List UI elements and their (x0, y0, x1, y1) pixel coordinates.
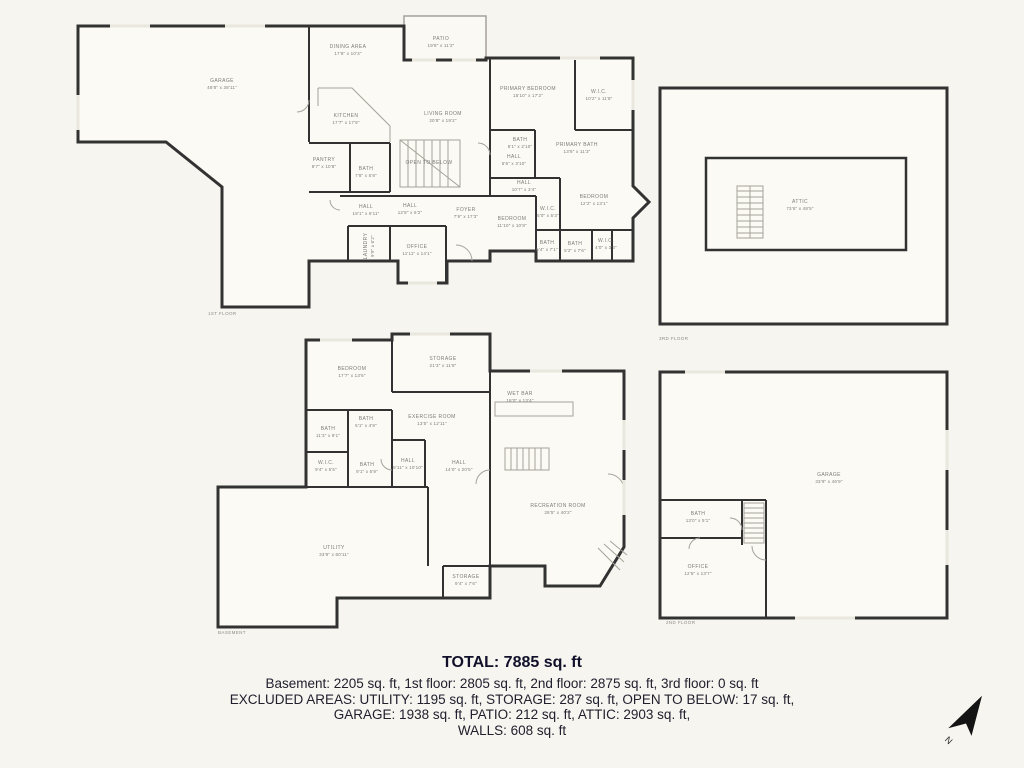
summary-total: TOTAL: 7885 sq. ft (0, 654, 1024, 672)
room-dimensions: 15'10" x 17'2" (500, 93, 556, 98)
summary-walls-area: WALLS: 608 sq. ft (0, 723, 1024, 739)
room-name: W.I.C. (595, 238, 617, 244)
room-label-office: OFFICE11'11" x 14'1" (402, 244, 431, 256)
floor-caption-third-floor: 3RD FLOOR (659, 336, 688, 341)
room-name: HALL (353, 204, 380, 210)
room-label-bath: BATH5'1" x 4'9" (355, 416, 377, 428)
room-label-office: OFFICE12'5" x 13'7" (684, 564, 711, 576)
room-label-bath: BATH11'3" x 9'1" (316, 426, 340, 438)
summary-excluded-areas-2: GARAGE: 1938 sq. ft, PATIO: 212 sq. ft, … (0, 707, 1024, 723)
room-dimensions: 8'11" x 10'10" (393, 465, 423, 470)
room-dimensions: 17'7" x 13'6" (338, 373, 367, 378)
room-label-bath: BATH5'4" x 7'1" (536, 240, 558, 252)
room-label-hall: HALL14'0" x 20'5" (445, 460, 472, 472)
room-dimensions: 18'1" x 6'11" (353, 211, 380, 216)
room-name: PATIO (428, 36, 455, 42)
room-name: HALL (398, 203, 423, 209)
room-name: BATH (536, 240, 558, 246)
room-dimensions: 33'9" x 46'9" (815, 479, 842, 484)
room-label-bedroom: BEDROOM11'10" x 10'8" (497, 216, 527, 228)
room-label-foyer: FOYER7'9" x 17'3" (454, 207, 479, 219)
room-label-bath: BATH5'2" x 7'6" (564, 241, 586, 253)
room-label-storage: STORAGE21'3" x 11'8" (429, 356, 456, 368)
room-name: WET BAR (506, 391, 533, 397)
room-name: BATH (508, 137, 533, 143)
room-name: PRIMARY BEDROOM (500, 86, 556, 92)
room-name: GARAGE (207, 78, 237, 84)
room-dimensions: 13'5" x 12'11" (408, 421, 455, 426)
room-dimensions: 73'6" x 48'5" (786, 206, 813, 211)
room-label-exercise-room: EXERCISE ROOM13'5" x 12'11" (408, 414, 455, 426)
room-label-hall: HALL8'11" x 10'10" (393, 458, 423, 470)
room-name: W.I.C. (315, 460, 337, 466)
room-name: BATH (686, 511, 711, 517)
room-label-hall: HALL12'8" x 6'2" (398, 203, 423, 215)
room-dimensions: 7'8" x 5'8" (355, 173, 377, 178)
room-dimensions: 12'5" x 13'7" (684, 571, 711, 576)
room-label-hall: HALL5'6" x 3'10" (502, 154, 527, 166)
room-label-bath: BATH7'8" x 5'8" (355, 166, 377, 178)
room-labels-layer: GARAGE48'8" x 38'11"DINING AREA17'8" x 1… (0, 0, 1024, 768)
room-name: STORAGE (452, 574, 479, 580)
room-dimensions: 5'6" x 3'10" (502, 161, 527, 166)
room-name: DINING AREA (330, 44, 367, 50)
room-name: OFFICE (402, 244, 431, 250)
room-dimensions: 12'8" x 6'2" (398, 210, 423, 215)
room-dimensions: 18'0" x 13'4" (506, 398, 533, 403)
room-dimensions: 5'4" x 7'1" (536, 247, 558, 252)
floor-caption-second-floor: 2ND FLOOR (666, 620, 695, 625)
room-name: FOYER (454, 207, 479, 213)
room-dimensions: 28'5" x 40'2" (530, 510, 585, 515)
room-label-bedroom: BEDROOM17'7" x 13'6" (338, 366, 367, 378)
area-summary: TOTAL: 7885 sq. ft Basement: 2205 sq. ft… (0, 654, 1024, 738)
room-dimensions: 9'4" x 7'6" (452, 581, 479, 586)
room-dimensions: 8'7" x 10'8" (312, 164, 337, 169)
room-dimensions: 17'8" x 10'3" (330, 51, 367, 56)
room-dimensions: 19'8" x 11'2" (428, 43, 455, 48)
room-label-bath: BATH9'1" x 5'9" (356, 462, 378, 474)
room-label-patio: PATIO19'8" x 11'2" (428, 36, 455, 48)
room-label-primary-bedroom: PRIMARY BEDROOM15'10" x 17'2" (500, 86, 556, 98)
room-name: OFFICE (684, 564, 711, 570)
room-name: BATH (316, 426, 340, 432)
room-dimensions: 48'8" x 38'11" (207, 85, 237, 90)
room-label-primary-bath: PRIMARY BATH13'8" x 11'3" (556, 142, 598, 154)
room-dimensions: 14'0" x 20'5" (445, 467, 472, 472)
room-name: OPEN TO BELOW (406, 160, 453, 166)
room-label-garage: GARAGE48'8" x 38'11" (207, 78, 237, 90)
room-dimensions: 21'3" x 11'8" (429, 363, 456, 368)
room-label-dining-area: DINING AREA17'8" x 10'3" (330, 44, 367, 56)
room-dimensions: 4'0" x 3'3" (595, 245, 617, 250)
room-label-utility: UTILITY33'9" x 60'11" (319, 545, 349, 557)
room-label-open-to-below: OPEN TO BELOW (406, 160, 453, 166)
room-dimensions: 5'0" x 5'3" (537, 213, 559, 218)
room-dimensions: 6'1" x 2'10" (508, 144, 533, 149)
room-name: EXERCISE ROOM (408, 414, 455, 420)
room-name: PANTRY (312, 157, 337, 163)
room-dimensions: 5'2" x 7'6" (564, 248, 586, 253)
room-label-recreation-room: RECREATION ROOM28'5" x 40'2" (530, 503, 585, 515)
room-label-laundry: LAUNDRY9'9" x 6'2" (363, 233, 375, 260)
room-name: HALL (502, 154, 527, 160)
room-name: HALL (393, 458, 423, 464)
room-dimensions: 17'7" x 17'9" (332, 120, 359, 125)
room-name: BEDROOM (580, 194, 609, 200)
room-dimensions: 5'1" x 4'9" (355, 423, 377, 428)
room-label-w-i-c-: W.I.C.9'4" x 5'5" (315, 460, 337, 472)
room-label-bath: BATH6'1" x 2'10" (508, 137, 533, 149)
room-label-garage: GARAGE33'9" x 46'9" (815, 472, 842, 484)
room-dimensions: 9'4" x 5'5" (315, 467, 337, 472)
room-label-wet-bar: WET BAR18'0" x 13'4" (506, 391, 533, 403)
room-dimensions: 12'2" x 13'1" (580, 201, 609, 206)
room-label-w-i-c-: W.I.C.5'0" x 5'3" (537, 206, 559, 218)
room-name: KITCHEN (332, 113, 359, 119)
room-dimensions: 11'11" x 14'1" (402, 251, 431, 256)
room-label-attic: ATTIC73'6" x 48'5" (786, 199, 813, 211)
room-dimensions: 10'2" x 11'8" (586, 96, 613, 101)
room-name: BATH (564, 241, 586, 247)
room-name: BEDROOM (338, 366, 367, 372)
room-name: W.I.C. (537, 206, 559, 212)
room-dimensions: 9'9" x 6'2" (370, 233, 375, 260)
room-name: BEDROOM (497, 216, 527, 222)
room-dimensions: 10'7" x 3'4" (512, 187, 537, 192)
room-name: STORAGE (429, 356, 456, 362)
room-name: UTILITY (319, 545, 349, 551)
room-dimensions: 13'0" x 5'1" (686, 518, 711, 523)
floor-caption-basement: BASEMENT (218, 630, 246, 635)
room-label-w-i-c-: W.I.C.10'2" x 11'8" (586, 89, 613, 101)
floor-caption-first-floor: 1ST FLOOR (208, 311, 237, 316)
room-name: LAUNDRY (363, 233, 369, 260)
room-name: LIVING ROOM (424, 111, 462, 117)
room-label-pantry: PANTRY8'7" x 10'8" (312, 157, 337, 169)
room-name: ATTIC (786, 199, 813, 205)
room-label-living-room: LIVING ROOM20'8" x 19'2" (424, 111, 462, 123)
room-dimensions: 11'3" x 9'1" (316, 433, 340, 438)
room-dimensions: 13'8" x 11'3" (556, 149, 598, 154)
room-dimensions: 20'8" x 19'2" (424, 118, 462, 123)
room-name: BATH (355, 166, 377, 172)
room-name: W.I.C. (586, 89, 613, 95)
room-name: RECREATION ROOM (530, 503, 585, 509)
summary-excluded-areas-1: EXCLUDED AREAS: UTILITY: 1195 sq. ft, ST… (0, 692, 1024, 708)
room-name: GARAGE (815, 472, 842, 478)
floorplan-page: N GARAGE48'8" x 38'11"DINING AREA17'8" x… (0, 0, 1024, 768)
room-dimensions: 9'1" x 5'9" (356, 469, 378, 474)
room-dimensions: 33'9" x 60'11" (319, 552, 349, 557)
room-dimensions: 11'10" x 10'8" (497, 223, 527, 228)
room-label-hall: HALL10'7" x 3'4" (512, 180, 537, 192)
summary-floor-areas: Basement: 2205 sq. ft, 1st floor: 2805 s… (0, 676, 1024, 692)
room-label-w-i-c-: W.I.C.4'0" x 3'3" (595, 238, 617, 250)
room-label-hall: HALL18'1" x 6'11" (353, 204, 380, 216)
room-label-kitchen: KITCHEN17'7" x 17'9" (332, 113, 359, 125)
room-label-storage: STORAGE9'4" x 7'6" (452, 574, 479, 586)
room-name: HALL (512, 180, 537, 186)
room-label-bedroom: BEDROOM12'2" x 13'1" (580, 194, 609, 206)
room-name: HALL (445, 460, 472, 466)
room-name: BATH (355, 416, 377, 422)
room-name: PRIMARY BATH (556, 142, 598, 148)
room-dimensions: 7'9" x 17'3" (454, 214, 479, 219)
room-name: BATH (356, 462, 378, 468)
room-label-bath: BATH13'0" x 5'1" (686, 511, 711, 523)
